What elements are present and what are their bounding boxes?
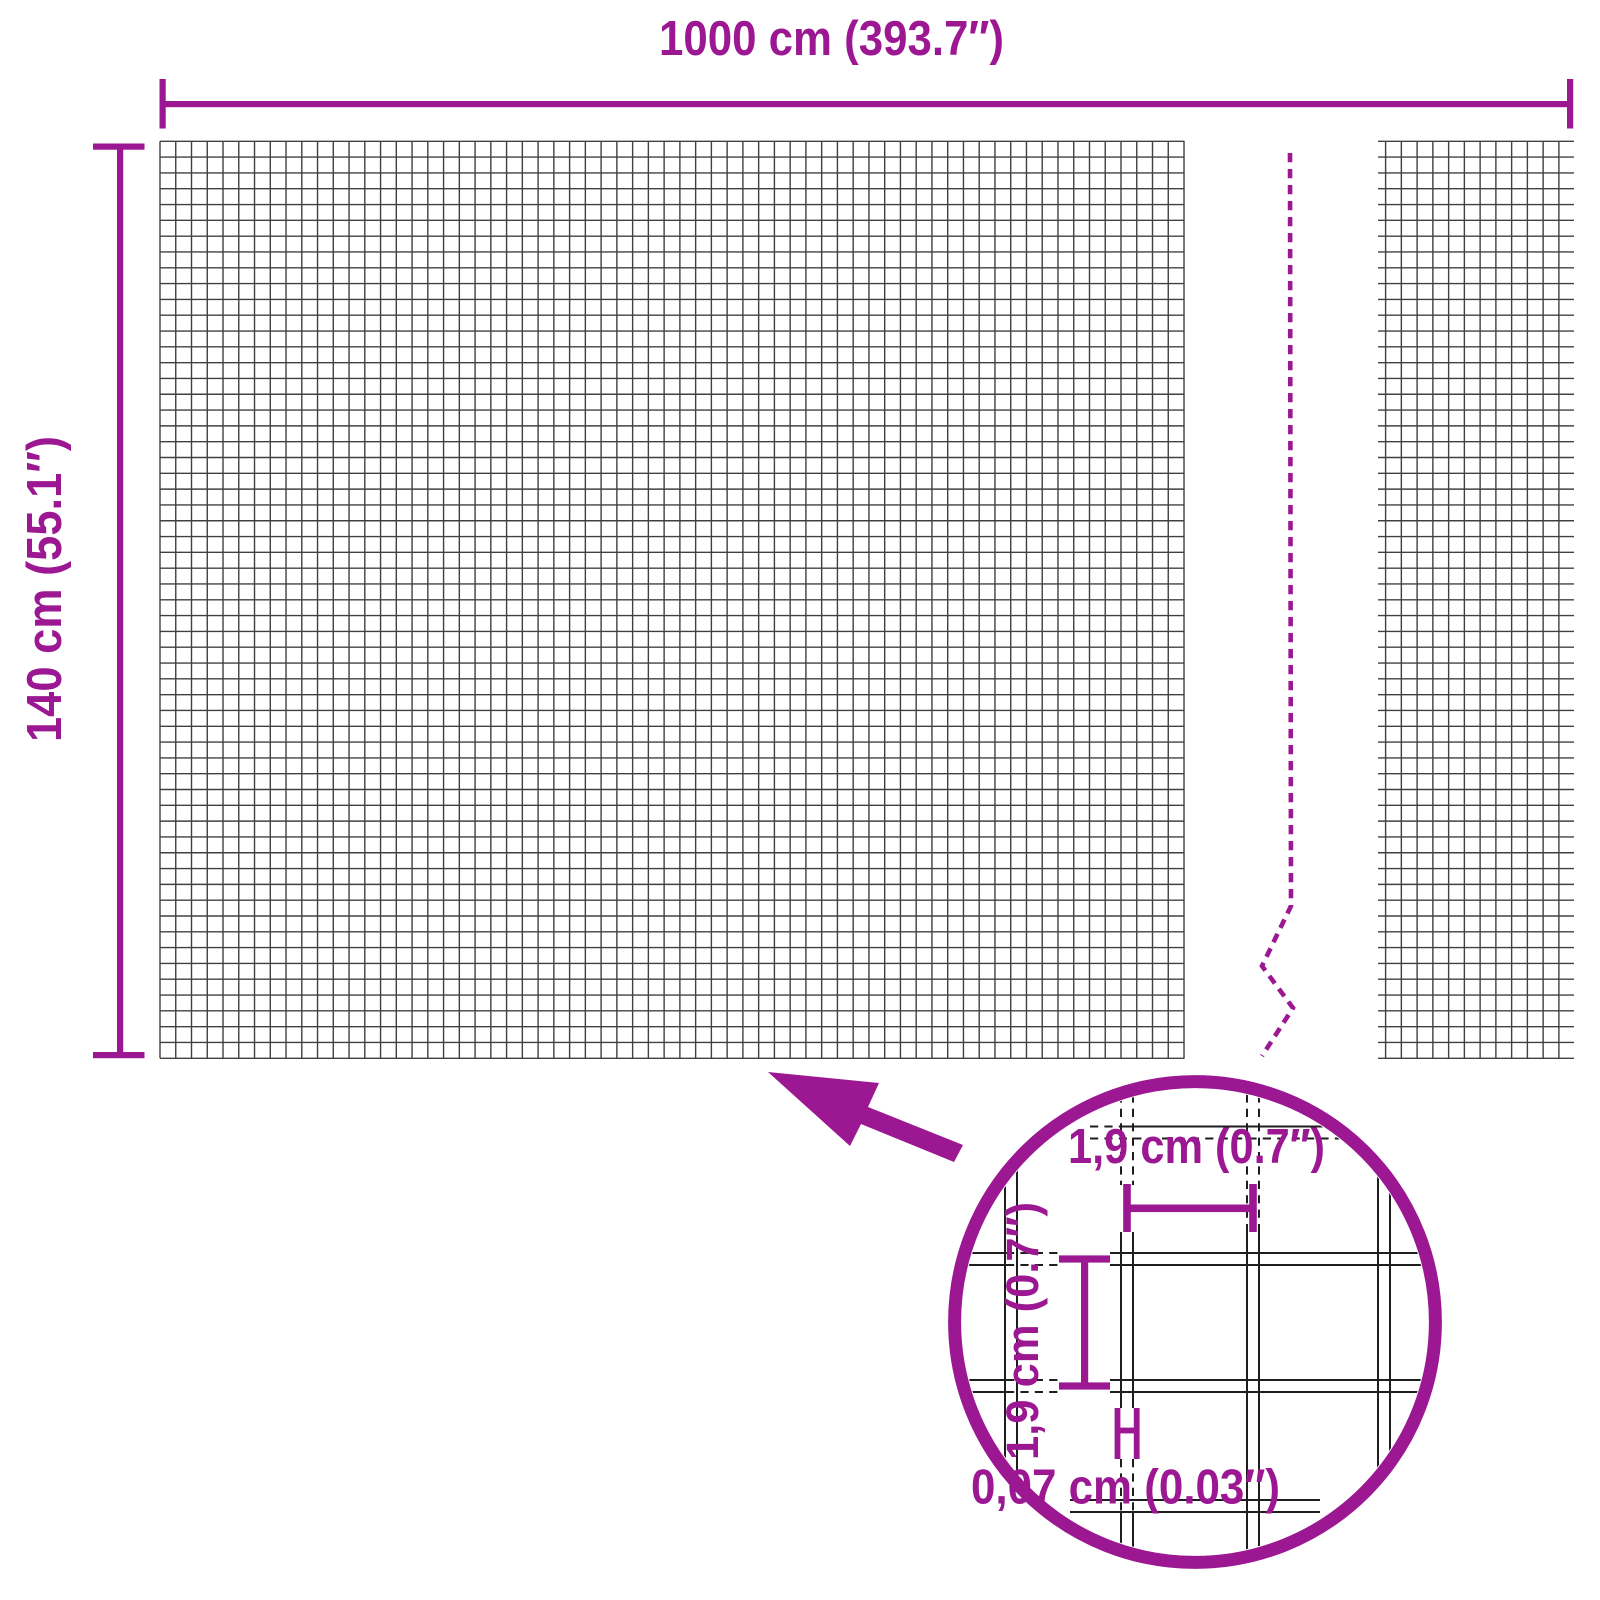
svg-text:1000 cm (393.7″): 1000 cm (393.7″) [659,12,1004,66]
svg-text:140 cm (55.1″): 140 cm (55.1″) [18,436,72,742]
svg-text:1,9 cm (0.7″): 1,9 cm (0.7″) [997,1202,1048,1460]
svg-text:0,07 cm (0.03″): 0,07 cm (0.03″) [971,1461,1280,1515]
svg-text:1,9 cm (0.7″): 1,9 cm (0.7″) [1068,1120,1325,1174]
